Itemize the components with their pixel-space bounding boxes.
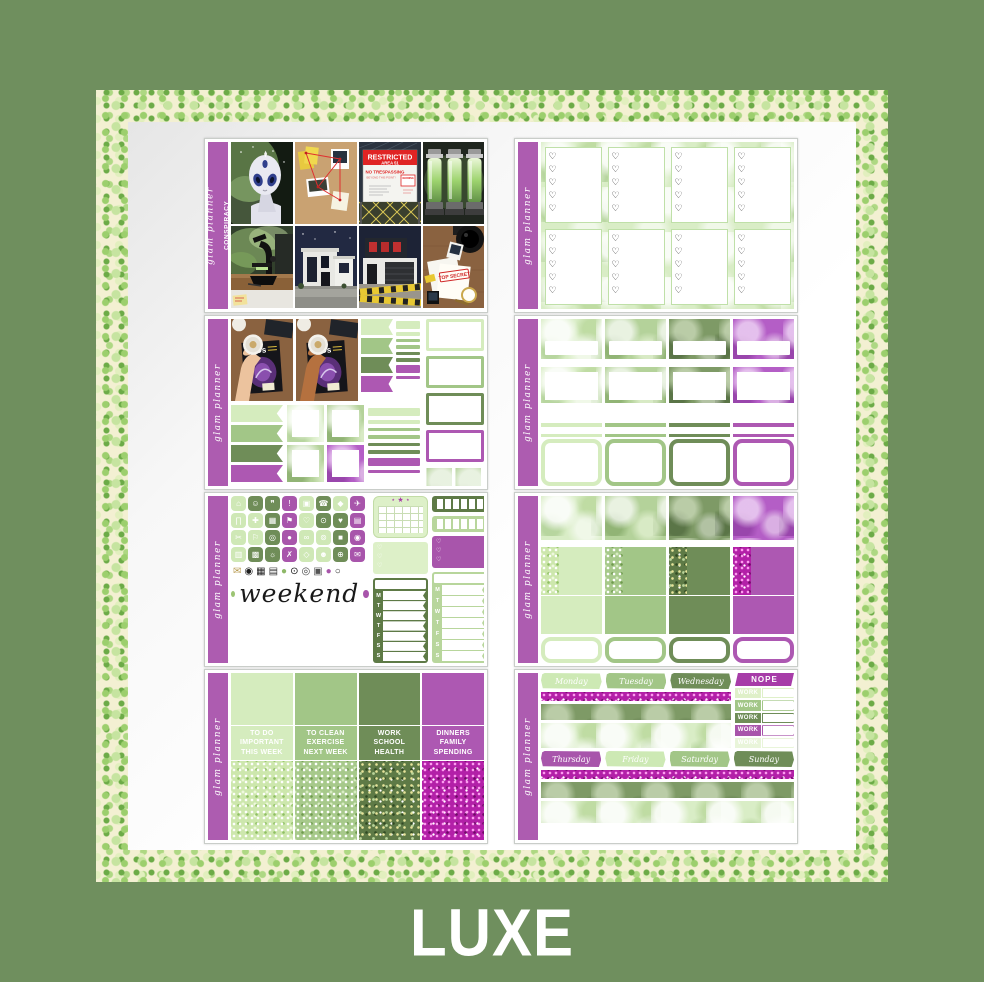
deco-sticker: ◉ [244,567,253,577]
planner-icon: ✈ [350,496,365,511]
swatch-column [669,496,730,663]
solid-swatch-sticker [605,596,666,634]
sticker-sheet-photo-fulls: glam planner CONSPIRACY [204,138,488,313]
flag-sticker [231,405,283,422]
planner-icon: ▣ [299,496,314,511]
heart-checklist-box: ♡ ♡ ♡ ♡ ♡ [545,229,602,305]
work-flag-sticker: WORK [735,688,794,698]
thin-line-sticker [541,434,602,437]
strip-sticker [396,321,420,329]
day-letter: F [375,632,382,641]
solid-swatch-sticker [669,596,730,634]
heart-icon: ♡ ♡ ♡ ♡ ♡ [612,232,664,297]
deco-sticker: ▦ [256,567,265,577]
kit-name-label: CONSPIRACY [224,201,231,250]
tracker-row: S [375,652,426,661]
strip-sticker [368,470,420,474]
strip-sticker [368,458,420,466]
planner-icon: ⊕ [333,547,348,562]
sheet-sidebar: glam planner [208,496,228,663]
rounded-outline-sticker [733,637,794,663]
todo-label-sticker: TO CLEANEXERCISENEXT WEEK [295,726,357,760]
glitter-block-sticker [359,761,421,840]
tracker-row: S [434,640,484,650]
brand-script: glam planner [213,717,223,796]
strip-sticker [396,376,420,380]
label-box-column [605,319,666,486]
day-letter: S [375,642,382,651]
sticker-sheet-icons: glam planner ⌂☺❞!▣☎◆✈∏✚▦⚑♡⊙♥▤✂⚐◎●∞⊚■◉▥▩☼… [204,492,488,667]
deco-sticker: ✉ [233,567,241,577]
strip-stickers [396,319,420,401]
solid-header-sticker [359,673,421,725]
day-letter: T [375,601,382,610]
light-green-washi [541,801,794,823]
tracker-row: F [434,629,484,639]
pennant-flag-sticker [455,468,481,486]
magenta-glitter-washi [541,692,731,701]
heart-checklist-box: ♡ ♡ ♡ ♡ ♡ [671,147,728,223]
light-green-washi [541,723,731,748]
planner-icon: ▦ [265,513,280,528]
sheet-sidebar: glam planner [518,673,538,840]
day-cover-sticker: Monday [541,673,602,689]
thin-line-sticker [733,434,794,437]
sheet-sidebar: glam planner [518,142,538,309]
nope-header-sticker: NOPE [735,673,794,686]
strip-sticker [396,332,420,336]
heart-icon: ♡ ♡ ♡ ♡ ♡ [549,232,601,297]
texture-label-sticker [605,319,666,359]
glitter-block-sticker [295,761,357,840]
beyond-point-text: BEYOND THIS POINT! [366,176,395,180]
sticker-sheets-grid: glam planner CONSPIRACY [204,138,798,844]
heart-box-purple: ♡ ♡ ♡ [432,536,484,568]
planner-icon: ● [282,530,297,545]
heart-icon: ♡ ♡ ♡ ♡ ♡ [675,150,727,215]
slat-bar-light [432,516,484,532]
work-flag-sticker: WORK [735,725,794,735]
planner-icon: ⚐ [248,530,263,545]
sticker-sheet-heart-checklists: glam planner ♡ ♡ ♡ ♡ ♡ ♡ ♡ ♡ ♡ ♡ ♡ ♡ ♡ ♡… [514,138,798,313]
day-cover-sticker: Tuesday [606,673,667,689]
planner-icon: ♥ [333,513,348,528]
deco-sticker: ◎ [301,567,310,577]
flag-sticker [231,425,283,442]
todo-column: DINNERSFAMILYSPENDING [422,673,484,840]
texture-box-sticker [669,367,730,403]
bokeh-swatch-sticker [541,496,602,540]
strip-sticker [368,435,420,439]
pennant-flag-sticker [426,468,452,486]
photo-ufo-magazine-light: UFOs [231,319,293,401]
day-covers-row-1: MondayTuesdayWednesday [541,673,731,689]
label-box-column [541,319,602,486]
heart-box-light: ♡ ♡ ♡ [373,542,428,574]
dot-sticker [363,590,369,598]
rounded-outline-sticker [669,637,730,663]
solid-header-sticker [231,673,293,725]
flag-sticker [361,319,393,335]
magenta-glitter-washi [541,770,794,779]
habit-tracker-dark: M T W T [373,578,428,663]
rounded-outline-sticker [541,637,602,663]
thin-line-sticker [669,434,730,437]
strip-sticker [368,408,420,416]
tracker-row: W [375,611,426,620]
photo-area51-sign: RESTRICTED AREA 51 NO TRESPASSING BEYOND… [359,142,421,224]
texture-box-sticker [541,367,602,403]
day-cover-sticker: Friday [605,751,665,767]
texture-box-sticker [733,367,794,403]
strip-sticker [396,365,420,373]
day-letter: T [434,596,441,606]
heart-icon: ♡ ♡ ♡ ♡ ♡ [738,150,790,215]
solid-header-sticker [422,673,484,725]
weekend-script-sticker: weekend [239,579,359,608]
deco-sticker: ▣ [313,567,322,577]
glitter-split-sticker [541,547,602,595]
day-letter: W [375,611,382,620]
planner-icon: ✂ [231,530,246,545]
slat-bar-dark [432,496,484,512]
strip-sticker [396,339,420,343]
flag-sticker [361,357,393,373]
day-cover-sticker: Thursday [541,751,601,767]
underline-box-sticker [541,404,602,427]
tracker-row: T [434,618,484,628]
deco-sticker: ● [326,567,332,577]
inner-panel: glam planner CONSPIRACY [128,122,856,850]
photo-microscope [231,226,293,308]
underline-box-sticker [605,404,666,427]
bokeh-swatch-sticker [605,496,666,540]
day-letter: T [375,621,382,630]
todo-column: TO DOIMPORTANTTHIS WEEK [231,673,293,840]
day-letter: M [434,585,441,595]
product-label: LUXE [0,894,984,971]
deco-sticker: ⊙ [290,567,298,577]
heart-checklist-box: ♡ ♡ ♡ ♡ ♡ [608,229,665,305]
planner-icon: ▩ [248,547,263,562]
tracker-row: T [375,601,426,610]
glitter-block-sticker [422,761,484,840]
strip-sticker [396,352,420,356]
outline-box-sticker [426,430,484,462]
texture-box-sticker [605,367,666,403]
planner-icon-grid: ⌂☺❞!▣☎◆✈∏✚▦⚑♡⊙♥▤✂⚐◎●∞⊚■◉▥▩☼✗◇☻⊕✉ [231,496,369,562]
photo-alien [231,142,293,224]
strip-stickers-2 [368,405,420,483]
strip-sticker [396,358,420,362]
solid-swatch-sticker [541,596,602,634]
heart-icon: ♡ ♡ ♡ ♡ ♡ [738,232,790,297]
photo-modern-house-night [295,226,357,308]
brand-script: glam planner [213,363,223,442]
planner-icon: ◉ [350,530,365,545]
day-covers-row-2: ThursdayFridaySaturdaySunday [541,751,794,767]
planner-icon: ☺ [248,496,263,511]
deco-sticker: ● [281,567,287,577]
square-sticker [287,405,324,442]
tracker-row: F [375,632,426,641]
restricted-subtitle: AREA 51 [381,161,399,166]
planner-icon: ∞ [299,530,314,545]
day-cover-sticker: Sunday [734,751,794,767]
swatch-column [605,496,666,663]
texture-label-sticker [541,319,602,359]
texture-label-sticker [669,319,730,359]
sticker-sheet-swatches: glam planner [514,492,798,667]
planner-icon: ❞ [265,496,280,511]
planner-icon: ▥ [231,547,246,562]
planner-icon: ✗ [282,547,297,562]
planner-icon: ■ [333,530,348,545]
solid-header-sticker [295,673,357,725]
solid-swatch-sticker [733,596,794,634]
day-letter: S [434,651,441,661]
planner-icon: ∏ [231,513,246,528]
glitter-block-sticker [231,761,293,840]
brand-script: glam planner [523,186,533,265]
large-flag-stickers [231,405,283,483]
photo-top-secret-desk: TOP SECRET [423,226,484,308]
strip-sticker [368,428,420,432]
flag-sticker [361,376,393,392]
swatch-column [541,496,602,663]
sheet-sidebar: glam planner [518,319,538,486]
heart-checklist-box: ♡ ♡ ♡ ♡ ♡ [545,147,602,223]
marquee-calendar-sticker: ⋆ ★ ⋆ [373,496,428,538]
strip-sticker [368,420,420,424]
label-box-column [733,319,794,486]
deco-sticker-cluster: ✉◉▦▤●⊙◎▣●○ [231,567,369,577]
planner-icon: ⌂ [231,496,246,511]
heart-icon: ♡ ♡ ♡ ♡ ♡ [675,232,727,297]
planner-icon: ▤ [350,513,365,528]
day-letter: S [434,640,441,650]
rounded-outline-sticker [605,439,666,486]
todo-column: WORKSCHOOLHEALTH [359,673,421,840]
underline-box-sticker [669,404,730,427]
tracker-row: T [375,621,426,630]
tracker-row: M [434,585,484,595]
todo-label-sticker: WORKSCHOOLHEALTH [359,726,421,760]
rounded-outline-sticker [605,637,666,663]
heart-checklist-background: ♡ ♡ ♡ ♡ ♡ ♡ ♡ ♡ ♡ ♡ ♡ ♡ ♡ ♡ ♡ ♡ ♡ ♡ ♡ ♡ … [541,142,794,309]
planner-icon: ⊚ [316,530,331,545]
underline-box-sticker [733,404,794,427]
dot-sticker [231,591,235,597]
square-sticker [287,445,324,482]
flag-sticker [361,338,393,354]
warning-label: WARNING [402,177,414,180]
planner-icon: ✉ [350,547,365,562]
tracker-row: T [434,596,484,606]
planner-icon: ✚ [248,513,263,528]
tracker-row: S [375,642,426,651]
photo-specimen-tubes [423,142,484,224]
rounded-outline-sticker [541,439,602,486]
no-trespassing-text: NO TRESPASSING [366,170,406,175]
outline-box-sticker [426,319,484,351]
todo-label-sticker: DINNERSFAMILYSPENDING [422,726,484,760]
small-flag-stickers [361,319,393,401]
planner-icon: ☎ [316,496,331,511]
tracker-row: W [434,607,484,617]
outline-boxes [426,319,484,462]
work-flag-sticker: WORK [735,738,794,748]
product-image: glam planner CONSPIRACY [0,0,984,982]
heart-icon: ♡ ♡ ♡ ♡ ♡ [612,150,664,215]
strip-sticker [368,443,420,447]
work-flags: WORK WORK WORK WORK WORK [735,688,794,748]
sticker-sheet-todo-columns: glam planner TO DOIMPORTANTTHIS WEEK [204,669,488,844]
sticker-sheet-date-covers: glam planner MondayTuesdayWednesday NOPE [514,669,798,844]
planner-icon: ☻ [316,547,331,562]
day-letter: M [375,591,382,600]
texture-label-sticker [733,319,794,359]
deco-sticker: ○ [335,567,341,577]
pennant-flags [426,468,484,486]
square-sticker [327,405,364,442]
day-cover-sticker: Saturday [670,751,730,767]
sheet-sidebar: glam planner [208,673,228,840]
day-letter: S [375,652,382,661]
glitter-split-sticker [605,547,666,595]
heart-checklist-box: ♡ ♡ ♡ ♡ ♡ [734,147,791,223]
sheet-sidebar: glam planner CONSPIRACY [208,142,228,309]
sheet-sidebar: glam planner [518,496,538,663]
planner-icon: ◎ [265,530,280,545]
sheet-sidebar: glam planner [208,319,228,486]
todo-label-sticker: TO DOIMPORTANTTHIS WEEK [231,726,293,760]
planner-icon: ⊙ [316,513,331,528]
brand-script: glam planner [206,186,216,265]
strip-sticker [368,450,420,454]
thin-line-sticker [605,434,666,437]
planner-icon: ☼ [265,547,280,562]
swatch-column [733,496,794,663]
photo-ufo-magazine-dark: UFOs [296,319,358,401]
heart-checklist-box: ♡ ♡ ♡ ♡ ♡ [608,147,665,223]
tracker-row: M [375,591,426,600]
sticker-sheet-flags-boxes: glam planner [204,315,488,490]
brand-script: glam planner [523,540,533,619]
brand-script: glam planner [213,540,223,619]
bokeh-swatch-sticker [669,496,730,540]
photo-crime-scene-house [359,226,421,308]
todo-column: TO CLEANEXERCISENEXT WEEK [295,673,357,840]
star-icons: ⋆ ★ ⋆ [374,496,427,504]
day-letter: F [434,629,441,639]
planner-icon: ! [282,496,297,511]
day-letter: T [434,618,441,628]
brand-script: glam planner [523,363,533,442]
dark-green-washi [541,704,731,720]
planner-icon: ⚑ [282,513,297,528]
outline-box-sticker [426,356,484,388]
outline-box-sticker [426,393,484,425]
flag-sticker [231,445,283,462]
planner-icon: ◇ [299,547,314,562]
work-flag-sticker: WORK [735,713,794,723]
rounded-outline-sticker [669,439,730,486]
square-sticker [327,445,364,482]
day-letter: W [434,607,441,617]
brand-script: glam planner [523,717,533,796]
heart-checklist-box: ♡ ♡ ♡ ♡ ♡ [734,229,791,305]
dark-green-washi [541,782,794,798]
tracker-row: S [434,651,484,661]
rounded-outline-sticker [733,439,794,486]
label-box-column [669,319,730,486]
sticker-sheet-label-boxes: glam planner [514,315,798,490]
planner-icon: ◆ [333,496,348,511]
photo-conspiracy-board [295,142,357,224]
heart-icon: ♡ ♡ ♡ ♡ ♡ [549,150,601,215]
flag-sticker [231,465,283,482]
habit-tracker-light: M T W T [432,572,484,663]
glitter-split-sticker [669,547,730,595]
day-cover-sticker: Wednesday [670,673,731,689]
strip-sticker [396,345,420,349]
planner-icon: ♡ [299,513,314,528]
bokeh-swatch-sticker [733,496,794,540]
work-flag-sticker: WORK [735,700,794,710]
square-stickers [287,405,364,483]
deco-sticker: ▤ [269,567,278,577]
heart-checklist-box: ♡ ♡ ♡ ♡ ♡ [671,229,728,305]
glitter-split-sticker [733,547,794,595]
